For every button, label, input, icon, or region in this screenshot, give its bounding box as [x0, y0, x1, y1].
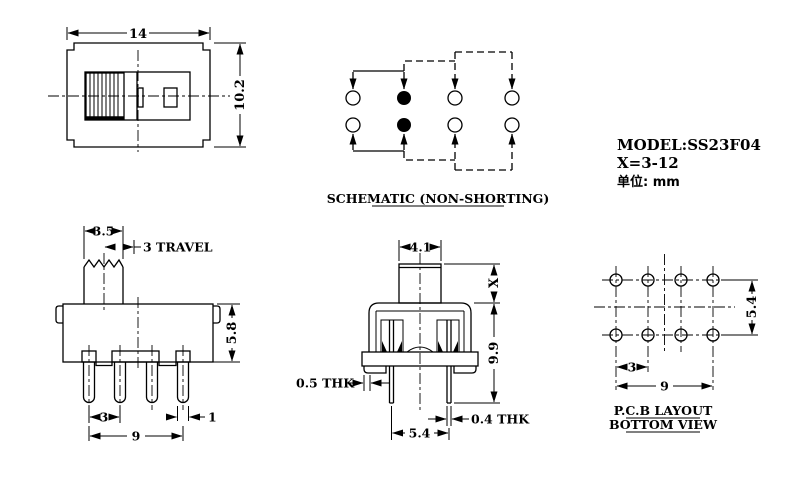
dim-x: X — [487, 277, 502, 288]
dim-top-width: 14 — [129, 27, 147, 42]
dim-wall-thk: 0.5 THK — [296, 376, 355, 391]
unit-label: 单位: mm — [617, 174, 680, 190]
dim-body-height: 5.8 — [225, 322, 240, 345]
active-contact-top — [397, 91, 411, 105]
pcb-label-line1: P.C.B LAYOUT — [614, 403, 713, 418]
dim-total-height: 9.9 — [487, 342, 502, 365]
dim-pin-pitch: 3 — [100, 410, 109, 425]
dim-front-stem: 4.1 — [410, 240, 432, 255]
dim-leg-thk: 0.4 THK — [471, 412, 530, 427]
dim-pin-width: 1 — [208, 410, 217, 425]
dim-hole-rows: 5.4 — [745, 296, 760, 319]
dim-top-height: 10.2 — [233, 79, 248, 111]
pcb-label-line2: BOTTOM VIEW — [609, 417, 718, 432]
x-range: X=3-12 — [617, 154, 679, 172]
active-contact-bottom — [397, 118, 411, 132]
engineering-drawing: 14 10.2 — [0, 0, 800, 500]
schematic-label: SCHEMATIC (NON-SHORTING) — [327, 191, 550, 206]
dim-hole-pitch: 3 — [628, 360, 637, 375]
dim-travel: 3 TRAVEL — [143, 240, 213, 255]
dim-stem-width: 3.5 — [93, 224, 115, 239]
dim-leg-span: 5.4 — [409, 426, 431, 441]
dim-hole-span: 9 — [660, 379, 669, 394]
model-number: MODEL:SS23F04 — [617, 136, 761, 154]
dim-pin-span: 9 — [132, 429, 141, 444]
